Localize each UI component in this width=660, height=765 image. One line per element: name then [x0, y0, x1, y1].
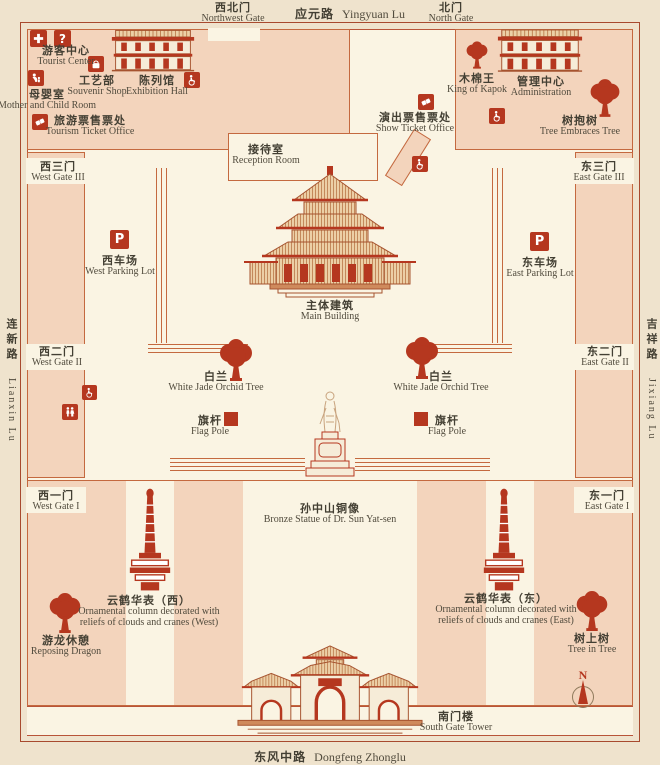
exhibition-hall-en: Exhibition Hall — [126, 87, 188, 98]
column-east-en: Ornamental column decorated with reliefs… — [430, 605, 582, 626]
poi-flag-pole-east: 旗杆 Flag Pole — [428, 414, 466, 438]
south-gate-tower-drawing — [236, 644, 424, 738]
east-road-line — [639, 22, 640, 741]
road-yingyuan-en: Yingyuan Lu — [342, 7, 405, 21]
statue-east-balustrade — [355, 458, 490, 472]
gate-west2-en: West Gate II — [32, 358, 82, 369]
gate-north-en: North Gate — [429, 14, 474, 25]
compass-dial-icon — [572, 686, 594, 708]
east-colonnade — [492, 168, 504, 343]
road-jixiang-en: Jixiang Lu — [646, 378, 657, 441]
mother-child-en: Mother and Child Room — [0, 101, 96, 112]
gate-west3: 西三门 West Gate III — [31, 160, 85, 184]
gate-west3-en: West Gate III — [31, 173, 85, 184]
road-jixiang-lu: 吉祥路 Jixiang Lu — [642, 318, 660, 468]
compass-needle-icon — [578, 680, 588, 704]
poi-east-parking: 东车场 East Parking Lot — [506, 256, 573, 280]
poi-west-parking: 西车场 West Parking Lot — [85, 254, 155, 278]
poi-white-jade-orchid-west: 白兰 White Jade Orchid Tree — [168, 370, 263, 394]
show-ticket-icon — [418, 94, 434, 110]
compass: N — [566, 668, 600, 708]
south-gate-en: South Gate Tower — [420, 723, 492, 734]
tourism-ticket-en: Tourism Ticket Office — [46, 127, 135, 138]
show-ticket-en: Show Ticket Office — [376, 124, 454, 135]
west-colonnade — [156, 168, 168, 343]
poi-sun-yatsen-statue: 孙中山铜像 Bronze Statue of Dr. Sun Yat-sen — [264, 502, 397, 526]
poi-king-of-kapok: 木棉王 King of Kapok — [447, 72, 507, 96]
road-yingyuan-zh: 应元路 — [295, 7, 334, 21]
tourist-center-en: Tourist Center — [37, 57, 94, 68]
flag-pole-east-marker — [414, 412, 428, 426]
west-wall — [27, 152, 85, 478]
administration-drawing — [496, 28, 584, 74]
south-road-line — [20, 741, 640, 742]
poi-mother-child-room: 母婴室 Mother and Child Room — [0, 88, 96, 112]
poi-tourism-ticket-office: 旅游票售票处 Tourism Ticket Office — [46, 114, 135, 138]
column-west-en: Ornamental column decorated with reliefs… — [73, 607, 225, 628]
restroom-icon — [62, 404, 78, 420]
north-road-line — [20, 22, 640, 23]
poi-reposing-dragon: 游龙休憩 Reposing Dragon — [31, 634, 101, 658]
parking-glyph-west: P — [115, 232, 125, 247]
road-dongfeng-zhonglu: 东风中路Dongfeng Zhonglu — [254, 746, 406, 765]
king-of-kapok-en: King of Kapok — [447, 85, 507, 96]
gate-east3: 东三门 East Gate III — [573, 160, 624, 184]
west-parking-en: West Parking Lot — [85, 267, 155, 278]
white-jade-east-en: White Jade Orchid Tree — [393, 383, 488, 394]
gate-northwest-en: Northwest Gate — [201, 14, 264, 25]
parking-icon-west: P — [110, 230, 129, 249]
gate-north: 北门 North Gate — [429, 1, 474, 25]
road-lianxin-zh: 连新路 — [5, 318, 18, 363]
poi-administration: 管理中心 Administration — [511, 75, 572, 99]
road-dongfeng-zh: 东风中路 — [254, 750, 306, 764]
gate-west1-en: West Gate I — [33, 502, 80, 513]
road-lianxin-en: Lianxin Lu — [6, 378, 17, 443]
main-building-en: Main Building — [301, 312, 360, 323]
poi-main-building: 主体建筑 Main Building — [301, 299, 360, 323]
road-dongfeng-en: Dongfeng Zhonglu — [314, 750, 406, 764]
main-building-drawing — [242, 166, 418, 300]
statue-en: Bronze Statue of Dr. Sun Yat-sen — [264, 515, 397, 526]
poi-south-gate-tower: 南门楼 South Gate Tower — [420, 710, 492, 734]
poi-reception-room: 接待室 Reception Room — [232, 143, 300, 167]
gate-east1-en: East Gate I — [585, 502, 629, 513]
wheelchair-icon-west — [82, 385, 97, 400]
east-wall — [575, 152, 633, 478]
reception-en: Reception Room — [232, 156, 300, 167]
gate-east2: 东二门 East Gate II — [581, 345, 629, 369]
administration-en: Administration — [511, 88, 572, 99]
white-jade-west-en: White Jade Orchid Tree — [168, 383, 263, 394]
statue-west-balustrade — [170, 458, 305, 472]
poi-white-jade-orchid-east: 白兰 White Jade Orchid Tree — [393, 370, 488, 394]
tree-in-tree-en: Tree in Tree — [568, 645, 617, 656]
poi-show-ticket-office: 演出票售票处 Show Ticket Office — [376, 111, 454, 135]
flag-pole-west-en: Flag Pole — [191, 427, 229, 438]
parking-glyph-east: P — [535, 234, 545, 249]
mother-child-icon — [28, 70, 44, 86]
gate-east1: 东一门 East Gate I — [585, 489, 629, 513]
poi-flag-pole-west: 旗杆 Flag Pole — [191, 414, 229, 438]
park-map: 应元路Yingyuan Lu 东风中路Dongfeng Zhonglu 连新路 … — [0, 0, 660, 765]
poi-tourist-center: 游客中心 Tourist Center — [37, 44, 94, 68]
northwest-gate-opening — [208, 28, 260, 41]
reposing-dragon-en: Reposing Dragon — [31, 647, 101, 658]
gate-west2: 西二门 West Gate II — [32, 345, 82, 369]
gate-west1: 西一门 West Gate I — [33, 489, 80, 513]
ornamental-column-west-drawing — [128, 484, 172, 596]
poi-tree-in-tree: 树上树 Tree in Tree — [568, 632, 617, 656]
road-lianxin-lu: 连新路 Lianxin Lu — [2, 318, 21, 468]
poi-ornamental-column-west: 云鹤华表（西） Ornamental column decorated with… — [73, 594, 225, 628]
king-of-kapok-tree-icon — [464, 40, 490, 70]
gate-east3-en: East Gate III — [573, 173, 624, 184]
tree-embraces-en: Tree Embraces Tree — [540, 127, 620, 138]
wheelchair-icon-admin — [489, 108, 505, 124]
road-jixiang-zh: 吉祥路 — [645, 318, 658, 363]
parking-icon-east: P — [530, 232, 549, 251]
gate-east2-en: East Gate II — [581, 358, 629, 369]
poi-tree-embraces-tree: 树抱树 Tree Embraces Tree — [540, 114, 620, 138]
flag-pole-east-en: Flag Pole — [428, 427, 466, 438]
east-parking-en: East Parking Lot — [506, 269, 573, 280]
road-yingyuan-lu: 应元路Yingyuan Lu — [295, 3, 405, 22]
poi-ornamental-column-east: 云鹤华表（东） Ornamental column decorated with… — [430, 592, 582, 626]
sun-yatsen-statue-drawing — [300, 388, 360, 480]
gate-northwest: 西北门 Northwest Gate — [201, 1, 264, 25]
ornamental-column-east-drawing — [482, 484, 526, 596]
exhibition-hall-drawing — [110, 28, 196, 74]
poi-exhibition-hall: 陈列馆 Exhibition Hall — [126, 74, 188, 98]
wheelchair-icon-reception — [412, 156, 428, 172]
tree-embraces-tree-icon — [587, 78, 623, 118]
